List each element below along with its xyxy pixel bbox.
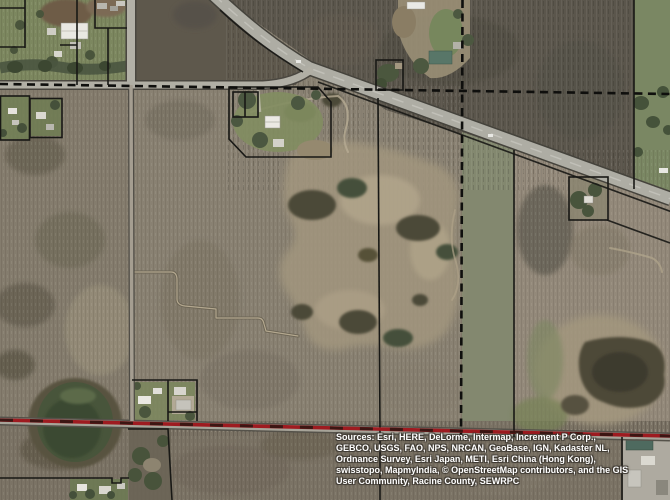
attribution-line: Ordnance Survey, Esri Japan, METI, Esri …	[336, 454, 628, 465]
south-lane	[131, 85, 132, 421]
attribution-line: swisstopo, MapmyIndia, © OpenStreetMap c…	[336, 465, 628, 476]
farmstead-bottom-right	[623, 437, 670, 500]
yards-bottom-left	[69, 479, 128, 500]
attribution-line: Sources: Esri, HERE, DeLorme, Intermap, …	[336, 432, 628, 443]
attribution-line: User Community, Racine County, SEWRPC	[336, 476, 628, 487]
map-attribution: Sources: Esri, HERE, DeLorme, Intermap, …	[336, 432, 628, 487]
aerial-imagery	[0, 0, 670, 500]
attribution-line: GEBCO, USGS, FAO, NPS, NRCAN, GeoBase, I…	[336, 443, 628, 454]
farmstead-southwest	[133, 382, 195, 421]
green-roof-building	[429, 51, 452, 64]
map-canvas[interactable]: Sources: Esri, HERE, DeLorme, Intermap, …	[0, 0, 670, 500]
scrub-parcel-south	[128, 429, 171, 500]
